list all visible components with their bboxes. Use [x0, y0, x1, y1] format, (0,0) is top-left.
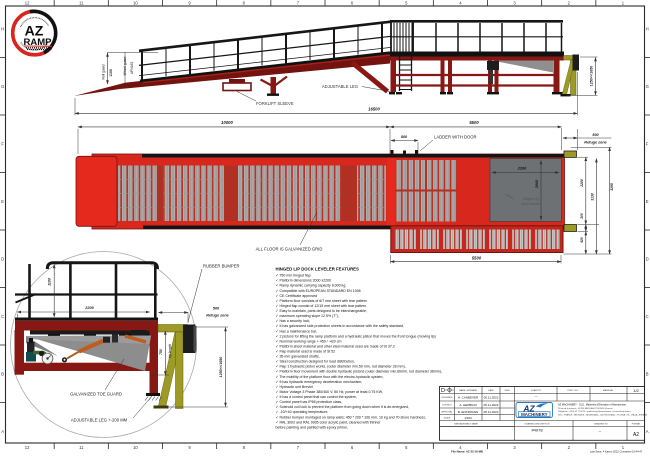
svg-text:✓ Steel construction designed: ✓ Steel construction designed for load d…: [276, 360, 355, 364]
svg-text:10: 10: [133, 1, 138, 6]
svg-text:✓ Platform floor consists of 6: ✓ Platform floor consists of 6/7 mm shee…: [276, 299, 368, 303]
svg-text:F: F: [646, 141, 649, 146]
svg-text:PROJ. VOL: PROJ. VOL: [568, 390, 580, 392]
svg-text:800: 800: [401, 135, 408, 139]
svg-text:3130: 3130: [590, 193, 594, 201]
svg-text:✓ Platform sheet material and: ✓ Platform sheet material and other stee…: [276, 344, 395, 348]
svg-text:D: D: [646, 256, 649, 261]
svg-text:Téléphone : +33 4 82 77 00 99: Téléphone : +33 4 82 77 00 99 - producti…: [558, 410, 632, 413]
svg-text:FORMAT: FORMAT: [632, 423, 641, 426]
svg-text:A2: A2: [633, 432, 639, 438]
svg-text:E: E: [646, 199, 649, 204]
svg-text:✓ Flap material used is made o: ✓ Flap material used is made of St 52: [276, 350, 336, 354]
svg-text:✓ CE Certificate approved: ✓ CE Certificate approved: [276, 294, 318, 298]
svg-text:UPN165: UPN165: [130, 62, 134, 75]
svg-text:Hinged lip: Hinged lip: [523, 197, 539, 201]
svg-text:2200: 2200: [580, 179, 584, 188]
svg-text:F: F: [1, 141, 4, 146]
svg-text:A. HEPBILDI: A. HEPBILDI: [459, 403, 477, 407]
svg-text:B. ENTZMANN: B. ENTZMANN: [458, 410, 478, 414]
svg-text:5500: 5500: [472, 256, 482, 261]
svg-text:HINGED LIP DOCK LEVELER FEATUR: HINGED LIP DOCK LEVELER FEATURES: [276, 267, 360, 272]
svg-text:✓ 35 mm galvanized shafts,: ✓ 35 mm galvanized shafts,: [276, 355, 320, 359]
svg-text:✓ Motor Voltage 3 Phase 380/40: ✓ Motor Voltage 3 Phase 380/400 V, 50 Hz…: [276, 390, 383, 394]
svg-text:ADJUSTABLE LEG: ADJUSTABLE LEG: [322, 84, 358, 89]
svg-text:✓ maximum operating slope 12.5: ✓ maximum operating slope 12.5% (7°),: [276, 314, 339, 318]
svg-text:Up lenght: Up lenght: [168, 343, 172, 359]
svg-text:Refuge zone: Refuge zone: [584, 140, 607, 144]
svg-text:1100: 1100: [109, 69, 113, 77]
svg-text:✓ Platform dimensions 2000 x22: ✓ Platform dimensions 2000 x2200: [276, 279, 332, 283]
svg-text:200: 200: [580, 213, 584, 220]
svg-text:H. CANBEVER: H. CANBEVER: [458, 396, 479, 400]
svg-text:C: C: [1, 314, 4, 319]
svg-text:DRAWING NO: DRAWING NO: [594, 423, 608, 426]
svg-text:2000: 2000: [535, 179, 539, 189]
svg-text:H: H: [1, 26, 4, 31]
svg-text:ALL FLOOR IS GALVANIZED GRID: ALL FLOOR IS GALVANIZED GRID: [256, 247, 323, 252]
svg-text:✓ Nominal working range + 450: ✓ Nominal working range + 450 / -420 cm: [276, 339, 342, 343]
svg-text:2200: 2200: [517, 167, 527, 171]
svg-text:11: 11: [79, 1, 84, 6]
svg-text:05.11.2022: 05.11.2022: [484, 403, 499, 407]
svg-text:✓ Has a maintenance bar,: ✓ Has a maintenance bar,: [276, 329, 317, 333]
svg-text:✓ RAL 3002 and RAL 9005 color: ✓ RAL 3002 and RAL 9005 color acrylic pa…: [276, 420, 382, 424]
svg-text:#4978: #4978: [531, 428, 543, 433]
svg-text:12: 12: [25, 1, 30, 6]
svg-text:GALVANIZED TOE GUARD: GALVANIZED TOE GUARD: [70, 392, 122, 397]
svg-text:16500: 16500: [368, 106, 380, 111]
svg-text:G: G: [1, 84, 4, 89]
svg-text:500: 500: [592, 133, 599, 137]
svg-text:73 rue de la traverse - 38 290: 73 rue de la traverse - 38 290 SATOLAS E…: [558, 407, 613, 410]
svg-text:05.11.2022: 05.11.2022: [484, 396, 499, 400]
svg-text:11: 11: [79, 445, 84, 450]
svg-text:DRAWING DESCRIPTION: DRAWING DESCRIPTION: [525, 423, 550, 426]
svg-text:✓ Compatible with EUROPEAN STA: ✓ Compatible with EUROPEAN STANDARD EN 1…: [276, 289, 361, 293]
svg-text:A: A: [1, 429, 4, 434]
svg-text:RUBBER BUMPER: RUBBER BUMPER: [203, 264, 240, 269]
svg-text:✓ Easy to maintain, parts desi: ✓ Easy to maintain, parts designed to be…: [276, 309, 368, 313]
svg-text:5500: 5500: [469, 120, 479, 125]
svg-text:✓ It has hydraulic emergency d: ✓ It has hydraulic emergency deceleratio…: [276, 380, 363, 384]
svg-text:✓ 750 mm hinged flap: ✓ 750 mm hinged flap: [276, 274, 311, 278]
svg-text:1100: 1100: [48, 278, 52, 286]
svg-text:1250<<1650: 1250<<1650: [589, 66, 593, 87]
svg-text:✓ It has galvanized side prote: ✓ It has galvanized side protection shee…: [276, 324, 405, 328]
svg-text:✓ Has a security lock,: ✓ Has a security lock,: [276, 319, 311, 323]
svg-text:Wheel guard: Wheel guard: [123, 56, 127, 75]
svg-text:MACHINERY: MACHINERY: [521, 412, 547, 417]
svg-text:PART/ASSEMBLY NAME: PART/ASSEMBLY NAME: [454, 423, 478, 426]
svg-text:A: A: [646, 429, 649, 434]
svg-text:DESIGNED: DESIGNED: [442, 397, 453, 399]
svg-text:B: B: [646, 371, 649, 376]
svg-text:10000: 10000: [221, 120, 233, 125]
svg-text:C: C: [646, 314, 649, 319]
svg-text:Last Save: 4 Kasım 2022 Cumart: Last Save: 4 Kasım 2022 Cumartesi 15:44:…: [590, 450, 643, 454]
svg-text:H: H: [646, 26, 649, 31]
svg-text:before painting and painted wi: before painting and painted with epoxy p…: [276, 425, 349, 429]
svg-text:750: 750: [159, 349, 163, 355]
svg-text:1/2: 1/2: [633, 388, 639, 393]
svg-text:✓ Ramp dynamic carrying capaci: ✓ Ramp dynamic carrying capacity 8.000 k…: [276, 284, 347, 288]
svg-text:12: 12: [25, 445, 30, 450]
svg-text:✓ It has a control panel that: ✓ It has a control panel that can contro…: [276, 395, 357, 399]
svg-text:1250<<1650: 1250<<1650: [219, 357, 223, 378]
svg-text:APPROVAL: APPROVAL: [441, 410, 453, 413]
svg-text:✓ Hinged flap consist of 12/15: ✓ Hinged flap consist of 12/15 mm sheet …: [276, 304, 367, 308]
svg-text:LADDER WITH DOOR: LADDER WITH DOOR: [434, 135, 477, 140]
svg-text:✓ Flap 1 hydraulic piston work: ✓ Flap 1 hydraulic piston works. (outer …: [276, 365, 406, 369]
svg-text:dock leveler: dock leveler: [521, 202, 541, 206]
svg-text:✓ Platform floor movement with: ✓ Platform floor movement with double hy…: [276, 370, 442, 374]
svg-text:D: D: [1, 256, 4, 261]
svg-text:✓ Rubber bumper montaged on ra: ✓ Rubber bumper montaged on ramp walls: …: [276, 415, 426, 419]
svg-text:File Name: AZ-22-16-MB: File Name: AZ-22-16-MB: [451, 450, 483, 454]
svg-text:✓ The mobility of the platform: ✓ The mobility of the platform floor wit…: [276, 375, 384, 379]
svg-text:3295: 3295: [610, 183, 614, 191]
svg-text:ADJUSTABLE LEG +-200 MM: ADJUSTABLE LEG +-200 MM: [71, 418, 128, 423]
svg-text:✓ -10/+40 operating temperatur: ✓ -10/+40 operating temperature: [276, 410, 328, 414]
svg-text:AZ MACHINERY - SLS , Matériels: AZ MACHINERY - SLS , Matériels d'Elévati…: [558, 404, 627, 407]
svg-text:MATERIAL: MATERIAL: [603, 389, 614, 392]
svg-text:500: 500: [213, 307, 220, 311]
svg-text:Roll guard: Roll guard: [102, 64, 106, 79]
svg-text:G: G: [646, 84, 649, 89]
svg-text:E: E: [1, 199, 4, 204]
svg-text:✓ 2 pistons for lifting the ra: ✓ 2 pistons for lifting the ramp platfor…: [276, 334, 436, 338]
svg-text:DATE: DATE: [488, 389, 494, 392]
svg-text:05.11.2022: 05.11.2022: [484, 410, 499, 414]
svg-text:FORKLIFT SLEEVE: FORKLIFT SLEEVE: [256, 101, 294, 106]
svg-text:✓ Solenoid coil lock to preven: ✓ Solenoid coil lock to prevent the plat…: [276, 405, 410, 409]
svg-text:1/100: 1/100: [464, 416, 472, 420]
svg-text:---: ---: [534, 395, 537, 399]
svg-text:CONTROL: CONTROL: [442, 405, 453, 407]
svg-text:Sites : FRANCE - BELGIQUE - NE: Sites : FRANCE - BELGIQUE - NEDERLAND - …: [558, 413, 647, 416]
svg-text:✓ Hydraulic unit Brevini: ✓ Hydraulic unit Brevini: [276, 385, 313, 389]
svg-text:NAME, SURNAME: NAME, SURNAME: [459, 389, 477, 392]
svg-text:2200: 2200: [84, 306, 94, 310]
svg-text:SCALE: SCALE: [444, 416, 451, 419]
svg-text:Refuge zone: Refuge zone: [206, 314, 229, 318]
svg-text:B: B: [1, 371, 4, 376]
svg-text:QUANTITY: QUANTITY: [531, 389, 542, 392]
svg-text:10: 10: [133, 445, 138, 450]
svg-text:SIGN: SIGN: [504, 390, 510, 392]
svg-text:920: 920: [580, 237, 584, 243]
svg-text:✓ Control panel has IP65 prote: ✓ Control panel has IP65 protection clas…: [276, 400, 343, 404]
